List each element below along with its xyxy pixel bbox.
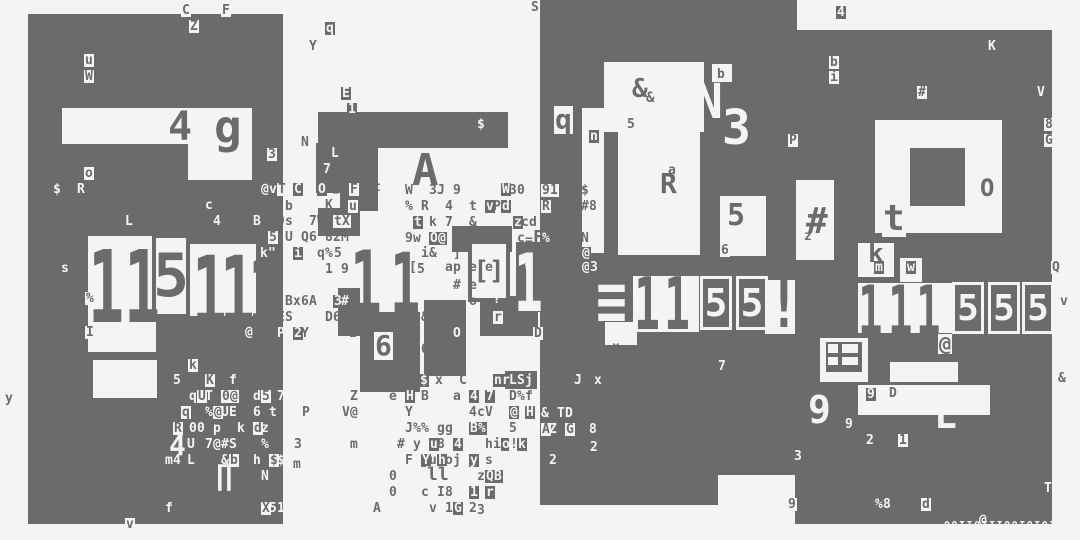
glyph: g [214, 104, 242, 150]
glyph: ≡ [596, 270, 627, 334]
glyph: % [205, 406, 213, 419]
glyph: E [341, 87, 351, 100]
glyph: % [261, 438, 269, 451]
glyph: 5 [173, 374, 181, 387]
glyph: 8 [589, 200, 597, 213]
glyph: h [253, 454, 261, 467]
glyph: # [917, 86, 927, 99]
glyph: q [189, 390, 197, 403]
glyph: 5 [261, 390, 271, 403]
glyph: y [469, 454, 479, 467]
glyph: 1 [277, 502, 285, 515]
glyph: 1 [248, 248, 281, 340]
glyph: @ [509, 406, 519, 419]
glyph: 1 [88, 238, 124, 338]
glyph: 1 [514, 244, 543, 324]
glyph: t [882, 201, 906, 237]
glyph: g [445, 422, 453, 435]
glyph: ? [493, 293, 501, 306]
glyph: R [660, 170, 677, 198]
glyph: 1 [898, 434, 908, 447]
glyph: p [453, 261, 461, 274]
glyph: @ [979, 514, 987, 527]
glyph: ! [768, 272, 800, 338]
glyph: 7 [205, 438, 213, 451]
boxed-digit: 5 [988, 282, 1020, 334]
glyph: 1 [445, 502, 453, 515]
glyph: 9 [277, 215, 285, 228]
glyph: 1 [858, 278, 883, 346]
glyph: 2 [333, 231, 341, 244]
glyph: E [573, 261, 581, 274]
glyph: 9 [341, 263, 349, 276]
glyph: @ [261, 183, 269, 196]
block [540, 505, 720, 540]
glyph: 0 [517, 184, 525, 197]
glyph: d [501, 200, 511, 213]
glyph: # [397, 438, 405, 451]
glyph: L [331, 147, 339, 160]
glyph: 8 [325, 231, 333, 244]
glyph: o [469, 295, 477, 308]
glyph: r [485, 486, 495, 499]
glyph: 0 [197, 422, 205, 435]
glyph: b [285, 200, 293, 213]
glyph: 4 [168, 107, 192, 147]
glyph: O [453, 327, 461, 340]
glyph: c [421, 486, 429, 499]
glyph: 7 [718, 360, 726, 373]
glyph: V [485, 406, 493, 419]
glyph: R [77, 183, 85, 196]
glyph: Y [333, 438, 341, 451]
glyph: n [341, 502, 349, 515]
glyph: 4 [836, 6, 846, 19]
window-icon-pane [828, 357, 838, 365]
glyph: j [453, 454, 461, 467]
glyph: n [405, 374, 413, 387]
glyph: # [581, 200, 589, 213]
glyph: M [341, 231, 349, 244]
glyph: b [829, 56, 839, 69]
glyph: i [293, 247, 303, 260]
glyph: Z [349, 390, 359, 403]
glyph: S [229, 438, 237, 451]
glyph: 7 [485, 390, 495, 403]
glyph: z [261, 422, 269, 435]
glyph: ll [426, 466, 450, 484]
glyph: 4 [445, 200, 453, 213]
glyph: y [5, 392, 13, 405]
glyph: C [293, 183, 303, 196]
glyph: $ [419, 374, 429, 387]
glyph: v [429, 502, 437, 515]
glyph: o [84, 167, 94, 180]
glyph: T [1044, 482, 1052, 495]
glyph: t [469, 200, 477, 213]
glyph: 7 [323, 163, 331, 176]
glyph: $ [277, 454, 285, 467]
glyph: 6 [421, 343, 429, 356]
glyph: 1 [445, 311, 453, 324]
glyph: J [574, 374, 582, 387]
boxed-digit: 5 [952, 282, 984, 334]
glyph: 9 [787, 498, 797, 511]
glyph: C [317, 390, 325, 403]
glyph: % [477, 422, 487, 435]
glyph: 2 [590, 441, 598, 454]
glyph: H [525, 406, 535, 419]
glyph: K [988, 40, 996, 53]
glyph: P [493, 200, 501, 213]
glyph: e [485, 261, 493, 274]
glyph: # [285, 390, 293, 403]
glyph: # [453, 279, 461, 292]
glyph: 4 [469, 406, 477, 419]
glyph: K [325, 199, 333, 212]
glyph: c [477, 406, 485, 419]
glyph: & [421, 311, 429, 324]
glyph: e [469, 279, 477, 292]
boxed-digit: 5 [700, 276, 732, 330]
glyph: e [469, 261, 477, 274]
glyph: W [84, 70, 94, 83]
glyph: 7 [445, 216, 453, 229]
glyph: B [493, 470, 503, 483]
glyph: f [229, 374, 237, 387]
glyph: t [373, 181, 381, 194]
glyph: $ [437, 311, 445, 324]
glyph: 5 [333, 247, 343, 260]
glyph: B [253, 215, 261, 228]
glyph: k [517, 438, 527, 451]
window-icon-pane [842, 344, 858, 353]
glyph: Q [301, 231, 309, 244]
glyph: R [173, 422, 183, 435]
glyph: p [213, 422, 221, 435]
window-icon-pane [842, 357, 858, 365]
glyph: z [804, 230, 812, 243]
glyph: 6 [374, 332, 393, 360]
glyph: 2 [549, 454, 557, 467]
glyph: L [187, 454, 195, 467]
glyph: Z [309, 406, 317, 419]
glyph: J [437, 184, 445, 197]
glyph: d [921, 498, 931, 511]
glyph: 1 [325, 263, 333, 276]
glyph: K [545, 247, 553, 260]
glyph: # [333, 184, 341, 197]
glyph: 9 [866, 388, 876, 401]
glyph: # [221, 438, 229, 451]
glyph: A [309, 295, 317, 308]
glyph: ] [453, 247, 461, 260]
glyph: 7 [309, 215, 317, 228]
glyph: & [469, 216, 477, 229]
glyph: Q [1051, 261, 1061, 274]
glyph: d [253, 390, 261, 403]
glyph: 6 [301, 295, 309, 308]
glyph: L [509, 374, 517, 387]
glyph: & [541, 407, 549, 420]
glyph: 3 [293, 438, 303, 451]
glyph: E [229, 406, 237, 419]
glyph: @ [437, 232, 447, 245]
glyph: 3 [722, 104, 751, 152]
glyph: x [612, 341, 620, 354]
glyph: t [269, 406, 277, 419]
glyph: N [301, 136, 309, 149]
glyph: 3 [429, 184, 437, 197]
glyph: & [646, 91, 654, 105]
glyph: x [565, 247, 573, 260]
glyph: R [421, 200, 429, 213]
glyph: @ [581, 247, 591, 260]
glyph: c [521, 216, 529, 229]
glyph: $ [53, 183, 61, 196]
binary-ticker: 00II0III00I0I0I00II00I00III000 [944, 520, 1080, 531]
glyph: f [525, 390, 533, 403]
glyph: M [573, 200, 581, 213]
glyph: q [317, 247, 325, 260]
glitch-collage: 00II0III00I0I0I00II00I00III000 5[]55555C… [0, 0, 1080, 540]
glyph: P [788, 134, 798, 147]
glyph: Z [189, 20, 199, 33]
glyph: 5 [627, 118, 635, 131]
glyph: Z [549, 423, 557, 436]
glyph: T [557, 407, 565, 420]
glyph: R [333, 454, 341, 467]
glyph: 3 [267, 148, 277, 161]
block [93, 360, 157, 398]
glyph: 5 [727, 201, 745, 231]
block [718, 475, 798, 540]
glyph: 1 [124, 238, 160, 338]
glyph: Y [405, 406, 413, 419]
glyph: 1 [493, 232, 501, 245]
glyph: 8 [1044, 118, 1054, 131]
boxed-digit: 5 [736, 276, 768, 330]
glyph: Y [301, 327, 309, 340]
glyph: u [348, 200, 358, 213]
glyph: 0 [389, 470, 397, 483]
glyph: 3 [794, 450, 802, 463]
glyph: F [405, 454, 413, 467]
glyph: 1 [350, 240, 382, 328]
glyph: 1 [390, 242, 420, 326]
glyph: O [557, 261, 565, 274]
glyph: N [694, 78, 723, 126]
glyph: 1 [634, 268, 660, 340]
glyph: 0 [189, 422, 197, 435]
glyph: 4 [173, 454, 181, 467]
glyph: G [453, 502, 463, 515]
glyph: S [517, 374, 525, 387]
glyph: % [405, 200, 413, 213]
glyph: 9 [845, 418, 853, 431]
glyph: N [309, 502, 317, 515]
glyph: U [187, 438, 195, 451]
glyph: 8 [445, 486, 453, 499]
glyph: 1 [347, 103, 357, 116]
glyph: F [221, 4, 231, 17]
glyph: i [421, 247, 429, 260]
glyph: u [84, 54, 94, 67]
glyph: 1 [325, 390, 333, 403]
glyph: C [459, 374, 467, 387]
glyph: j [405, 358, 413, 371]
glyph: X [341, 215, 351, 228]
glyph: S [285, 311, 293, 324]
boxed-digit: 5 [1022, 282, 1054, 334]
block [910, 148, 965, 206]
glyph: t [413, 216, 423, 229]
glyph: m [165, 454, 173, 467]
glyph: 8 [437, 438, 445, 451]
glyph: i [829, 71, 839, 84]
glyph: a [445, 261, 453, 274]
glyph: z [181, 522, 189, 535]
glyph: r [493, 311, 503, 324]
glyph: 3 [509, 184, 517, 197]
glyph: e [389, 390, 397, 403]
glyph: I [437, 486, 445, 499]
glyph: H [405, 390, 415, 403]
glyph: g [437, 422, 445, 435]
glyph: 6 [333, 311, 341, 324]
glyph: 4 [469, 390, 479, 403]
glyph: 4 [213, 215, 221, 228]
glyph: q [325, 22, 335, 35]
glyph: k [237, 422, 245, 435]
glyph: x [293, 295, 301, 308]
glyph: # [341, 295, 349, 308]
glyph: O [317, 183, 327, 196]
glyph: & [1057, 372, 1067, 385]
glyph: 3 [477, 504, 485, 517]
glyph: G [1044, 134, 1054, 147]
glyph: R [541, 200, 551, 213]
glyph: N [261, 470, 269, 483]
glyph: N [581, 232, 589, 245]
glyph: s [285, 215, 293, 228]
glyph: @ [229, 390, 239, 403]
glyph: Q [325, 438, 333, 451]
glyph: s [61, 262, 69, 275]
glyph: v [1060, 295, 1068, 308]
glyph: D [509, 390, 517, 403]
glyph: 1 [916, 278, 941, 346]
glyph: V [1037, 86, 1045, 99]
glyph: % [421, 422, 429, 435]
glyph: 9 [293, 502, 301, 515]
glyph: @ [213, 438, 221, 451]
block [890, 362, 958, 382]
glyph: L [125, 215, 133, 228]
glyph: T [277, 183, 287, 196]
glyph: v [269, 183, 277, 196]
glyph: p [469, 232, 477, 245]
glyph: T [205, 390, 213, 403]
glyph: 9 [453, 184, 461, 197]
block [618, 112, 700, 255]
glyph: 9 [808, 391, 831, 429]
glyph: X [309, 390, 317, 403]
glyph: A [373, 502, 381, 515]
glyph: k [429, 216, 437, 229]
glyph: 9 [317, 502, 325, 515]
glyph: q [181, 406, 191, 419]
glyph: 1 [888, 278, 913, 346]
glyph: h [485, 438, 493, 451]
glyph: 3 [301, 391, 309, 404]
glyph: % [413, 422, 421, 435]
glyph: B [285, 295, 293, 308]
glyph: 2 [469, 502, 477, 515]
glyph: m [292, 458, 302, 471]
glyph: O [980, 176, 994, 200]
glyph: 2 [866, 434, 874, 447]
glyph: W [317, 215, 325, 228]
glyph: Y [309, 40, 317, 53]
glyph: C [181, 4, 191, 17]
glyph: 6 [309, 231, 317, 244]
glyph: 1 [664, 268, 690, 340]
glyph: 1 [309, 470, 317, 483]
glyph: I [429, 311, 437, 324]
glyph: 1 [549, 184, 559, 197]
glyph: 8 [565, 200, 573, 213]
glyph: U [285, 231, 293, 244]
glyph: c [205, 199, 213, 212]
glyph: j [341, 438, 349, 451]
glyph: k [188, 359, 198, 372]
glyph: 0 [389, 486, 397, 499]
glyph: $ [625, 363, 642, 391]
glyph: j [525, 374, 533, 387]
glyph: $ [581, 184, 589, 197]
glyph: v [125, 518, 135, 531]
glyph: z [477, 470, 485, 483]
glyph: x [594, 374, 602, 387]
glyph: 5 [509, 422, 517, 435]
glyph: 7 [277, 390, 285, 403]
glyph: & [429, 247, 437, 260]
glyph: 4 [565, 261, 573, 274]
glyph: U [221, 406, 229, 419]
glyph: $ [477, 118, 485, 131]
glyph: i [493, 438, 501, 451]
glyph: W [405, 184, 413, 197]
glyph: L [934, 396, 957, 434]
glyph: A [285, 438, 293, 451]
glyph: % [875, 498, 883, 511]
window-icon-pane [828, 344, 838, 353]
glyph: @ [349, 406, 359, 419]
glyph: b [229, 454, 239, 467]
block [858, 385, 990, 415]
glyph: 6 [253, 406, 261, 419]
glyph: 8 [883, 498, 891, 511]
glyph: S [530, 1, 540, 14]
glyph: q [554, 106, 573, 134]
glyph: D [565, 407, 573, 420]
glyph: % [517, 390, 525, 403]
glyph: s [485, 454, 493, 467]
glyph: B [421, 390, 429, 403]
glyph: 5 [269, 502, 277, 515]
glyph: & [221, 454, 229, 467]
